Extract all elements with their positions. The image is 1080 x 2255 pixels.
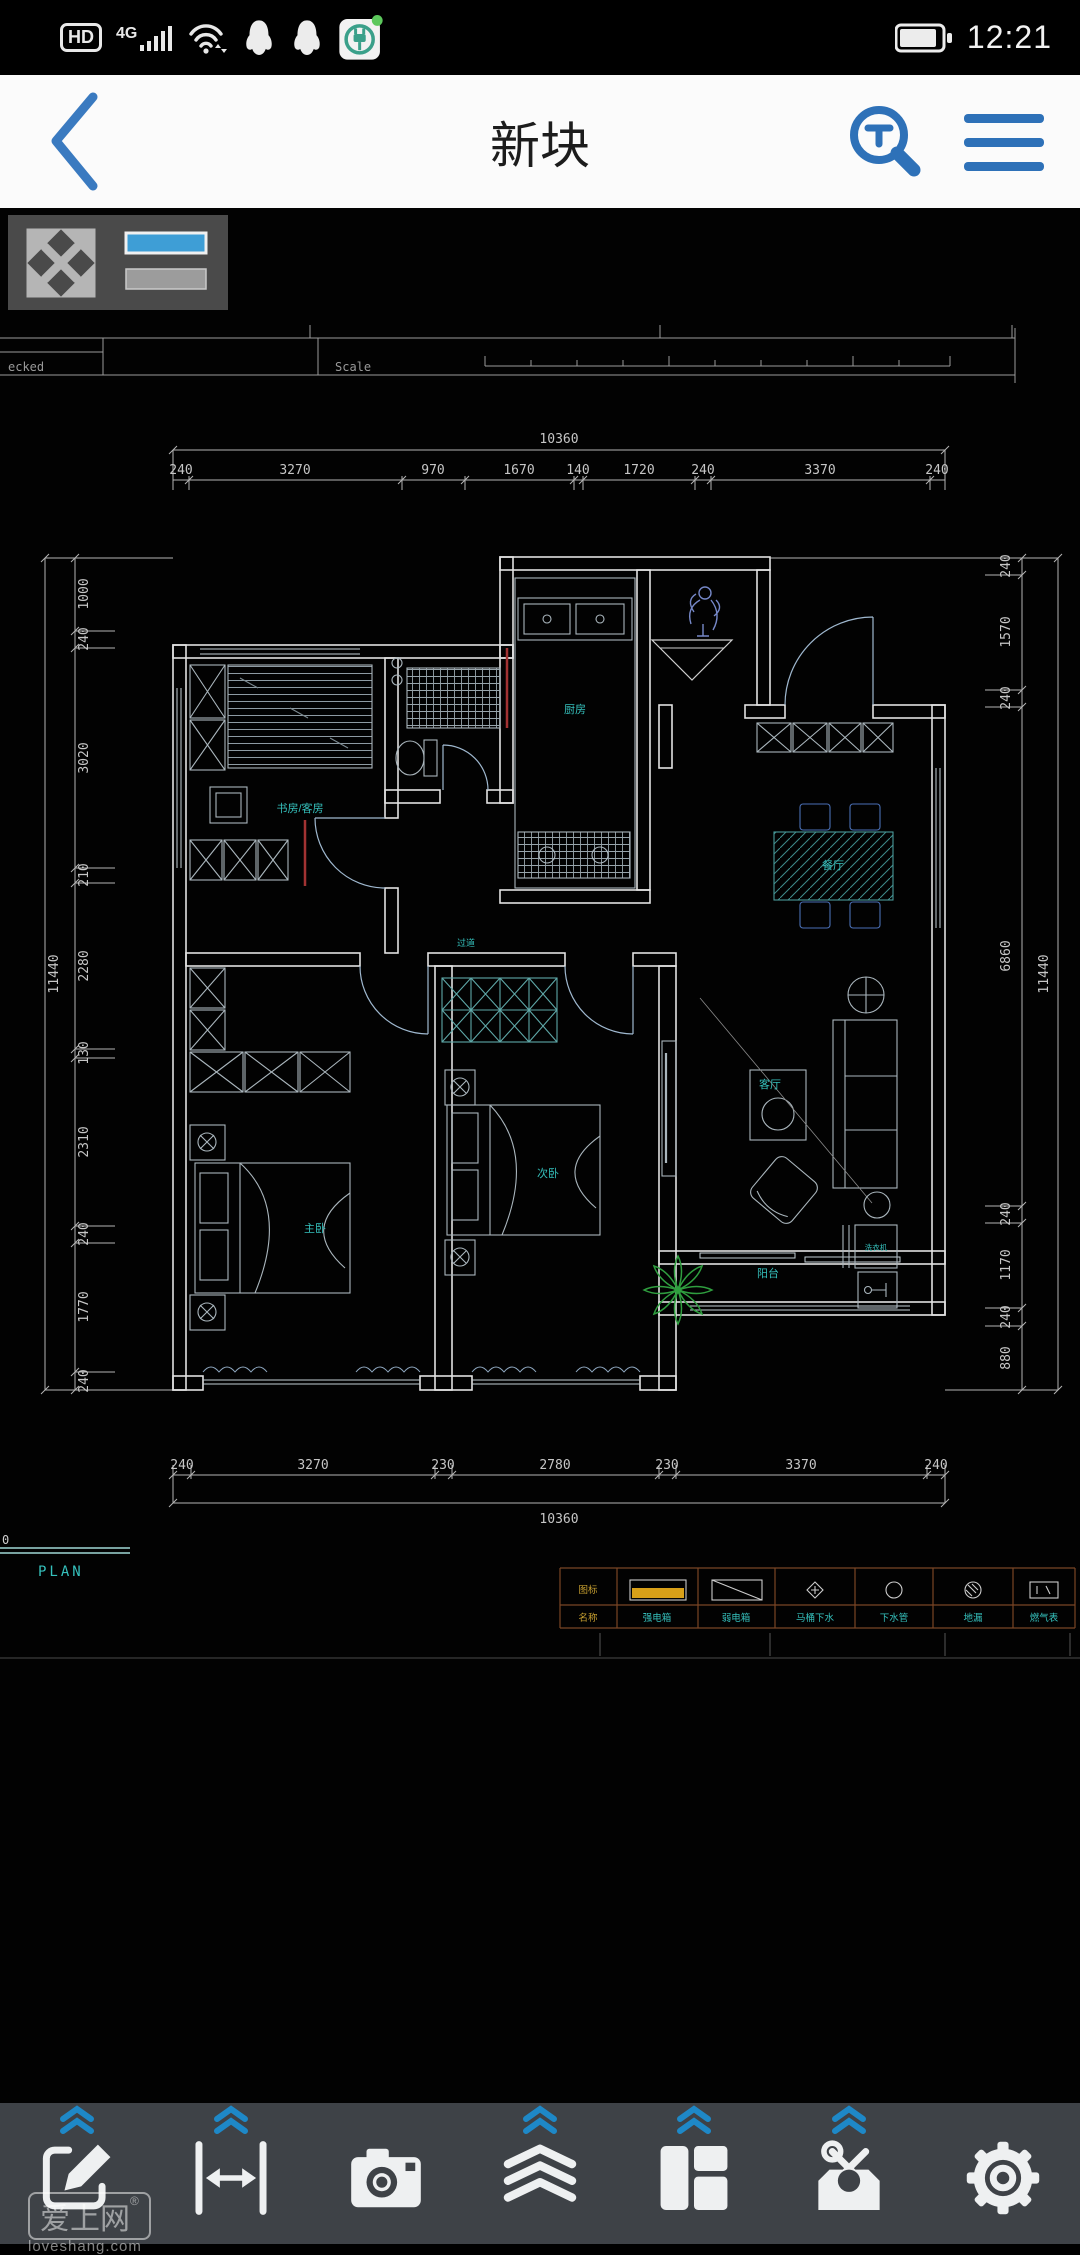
dim-bottom-seg: 240	[924, 1458, 947, 1473]
legend-item-name: 地漏	[963, 1612, 982, 1624]
dim-left-total: 11440	[47, 954, 62, 993]
plan-caption: PLAN	[38, 1564, 84, 1580]
dim-right-seg: 880	[999, 1346, 1014, 1369]
legend-item-name: 弱电箱	[722, 1612, 751, 1624]
layer-bars-icon	[123, 231, 209, 295]
dim-top-seg: 240	[169, 463, 192, 478]
clock: 12:21	[967, 19, 1052, 56]
canvas-mini-toolbar	[8, 215, 228, 310]
left-edge-number: 0	[2, 1533, 9, 1547]
measure-button[interactable]	[154, 2103, 308, 2244]
dim-top-total: 10360	[539, 432, 578, 447]
room-label-dining: 餐厅	[822, 858, 844, 872]
dim-top-seg: 3270	[279, 463, 310, 478]
camera-icon	[347, 2139, 425, 2217]
titleblock-checked-label: ecked	[8, 360, 44, 374]
curtain-lines	[203, 1367, 640, 1372]
dim-right-seg: 240	[999, 1305, 1014, 1328]
nav-bar: 新块	[0, 75, 1080, 208]
dimension-bottom: 240 3270 230 2780 230 3370 240 10360	[169, 1458, 949, 1527]
expand-arrows-icon	[21, 223, 101, 303]
legend-table: 图标 名称 强电箱 弱电箱 马桶下水 下水管 地漏 燃气表	[560, 1568, 1075, 1656]
legend-symbol-gas-meter	[1030, 1582, 1058, 1598]
dim-right-total: 11440	[1037, 954, 1052, 993]
network-type-label: 4G	[116, 25, 137, 43]
dim-top-seg: 240	[925, 463, 948, 478]
expand-up-icon	[827, 2105, 871, 2135]
dim-bottom-seg: 2780	[539, 1458, 570, 1473]
dim-bottom-seg: 230	[655, 1458, 678, 1473]
fit-view-button[interactable]	[8, 215, 113, 310]
floor-plan-drawing: ecked Scale 10360 240 3270 970 1670 140 …	[0, 208, 1080, 2103]
dim-left-seg: 240	[77, 627, 92, 650]
legend-item-name: 燃气表	[1030, 1612, 1059, 1624]
expand-up-icon	[209, 2105, 253, 2135]
plant-icon	[644, 1256, 712, 1324]
qq-penguin-icon-2	[290, 19, 324, 57]
dim-right-seg: 240	[999, 1202, 1014, 1225]
room-label-study: 书房/客房	[276, 801, 323, 815]
legend-item-name: 强电箱	[643, 1612, 672, 1624]
label-washer: 洗衣机	[865, 1242, 888, 1252]
toolbox-icon	[810, 2139, 888, 2217]
entry-figure-icon	[690, 587, 720, 636]
dim-left-seg: 2310	[77, 1126, 92, 1157]
settings-button[interactable]	[926, 2103, 1080, 2244]
dimension-right: 240 1570 240 6860 240 1170 240 880 11440	[770, 554, 1062, 1394]
qq-penguin-icon	[242, 19, 276, 57]
room-label-second: 次卧	[537, 1166, 559, 1180]
dim-left-seg: 2280	[77, 950, 92, 981]
dim-right-seg: 6860	[999, 940, 1014, 971]
layout-button[interactable]	[617, 2103, 771, 2244]
dim-right-seg: 240	[999, 686, 1014, 709]
watermark-brand: 爱上网	[40, 2203, 130, 2236]
dim-right-seg: 1570	[999, 616, 1014, 647]
dim-top-seg: 970	[421, 463, 444, 478]
wifi-icon	[188, 20, 228, 56]
expand-up-icon	[518, 2105, 562, 2135]
dim-left-seg: 130	[77, 1041, 92, 1064]
dim-top-seg: 1720	[623, 463, 654, 478]
menu-button[interactable]	[962, 102, 1046, 182]
dim-right-seg: 1170	[999, 1249, 1014, 1280]
dimension-left: 1000 240 3020 210 2280 130 2310 240 1770…	[41, 554, 173, 1394]
legend-item-name: 马桶下水	[796, 1612, 835, 1624]
room-label-master: 主卧	[304, 1222, 326, 1235]
watermark: 爱上网® loveshang.com	[28, 2192, 151, 2255]
layers-button[interactable]	[463, 2103, 617, 2244]
master-bedroom-furniture	[190, 968, 350, 1330]
layout-blocks-icon	[655, 2139, 733, 2217]
study-furniture	[190, 665, 372, 880]
room-label-living: 客厅	[759, 1077, 781, 1091]
plan-caption-block: 0 PLAN	[0, 1533, 130, 1580]
bath-furniture	[392, 658, 500, 776]
legend-header-name: 名称	[578, 1612, 598, 1624]
dim-left-seg: 3020	[77, 742, 92, 773]
bottom-toolbar	[0, 2103, 1080, 2244]
dim-right-seg: 240	[999, 554, 1014, 577]
layers-panel-button[interactable]	[113, 215, 218, 310]
measure-icon	[192, 2139, 270, 2217]
dim-left-seg: 1770	[77, 1291, 92, 1322]
search-t-glyph	[868, 128, 890, 144]
dim-left-seg: 210	[77, 863, 92, 886]
battery-icon	[895, 22, 955, 54]
smart-plug-icon	[338, 15, 384, 61]
dim-bottom-seg: 3270	[297, 1458, 328, 1473]
wifi-arrows-icon	[215, 44, 227, 53]
kitchen-furniture	[515, 578, 635, 888]
dim-top-seg: 240	[691, 463, 714, 478]
watermark-reg: ®	[130, 2194, 139, 2208]
dim-top-seg: 3370	[804, 463, 835, 478]
legend-item-name: 下水管	[880, 1612, 909, 1624]
dim-left-seg: 240	[77, 1222, 92, 1245]
title-block-fragment	[0, 325, 1015, 383]
legend-header-icon: 图标	[578, 1584, 598, 1596]
dim-bottom-seg: 240	[170, 1458, 193, 1473]
room-label-corridor: 过道	[457, 937, 475, 948]
entry-symbol	[652, 587, 732, 680]
dim-bottom-seg: 230	[431, 1458, 454, 1473]
room-label-balcony: 阳台	[757, 1266, 779, 1280]
dim-left-seg: 1000	[77, 578, 92, 609]
legend-symbol-power-box	[632, 1588, 684, 1598]
dining-furniture	[757, 723, 893, 928]
legend-symbol-drain-pipe	[886, 1582, 902, 1598]
signal-bars-icon	[140, 23, 174, 53]
snapshot-button[interactable]	[309, 2103, 463, 2244]
expand-up-icon	[55, 2105, 99, 2135]
toolbox-button[interactable]	[771, 2103, 925, 2244]
room-label-kitchen: 厨房	[564, 703, 586, 716]
status-bar: HD 4G	[0, 0, 1080, 75]
text-search-button[interactable]	[846, 102, 924, 182]
dim-bottom-seg: 3370	[785, 1458, 816, 1473]
expand-up-icon	[672, 2105, 716, 2135]
dim-left-seg: 240	[77, 1369, 92, 1392]
second-bedroom-furniture	[442, 978, 600, 1275]
dim-bottom-total: 10360	[539, 1512, 578, 1527]
dim-top-seg: 1670	[503, 463, 534, 478]
gear-icon	[964, 2139, 1042, 2217]
legend-symbols	[630, 1580, 1058, 1600]
watermark-domain: loveshang.com	[28, 2238, 151, 2255]
hd-icon: HD	[60, 23, 102, 52]
titleblock-scale-label: Scale	[335, 360, 371, 374]
layers-icon	[501, 2139, 579, 2217]
legend-symbol-toilet-drain	[807, 1582, 823, 1598]
dim-top-seg: 140	[566, 463, 589, 478]
dimension-top: 10360 240 3270 970 1670 140 1720 240 337…	[169, 432, 949, 490]
cad-canvas[interactable]: ecked Scale 10360 240 3270 970 1670 140 …	[0, 208, 1080, 2103]
